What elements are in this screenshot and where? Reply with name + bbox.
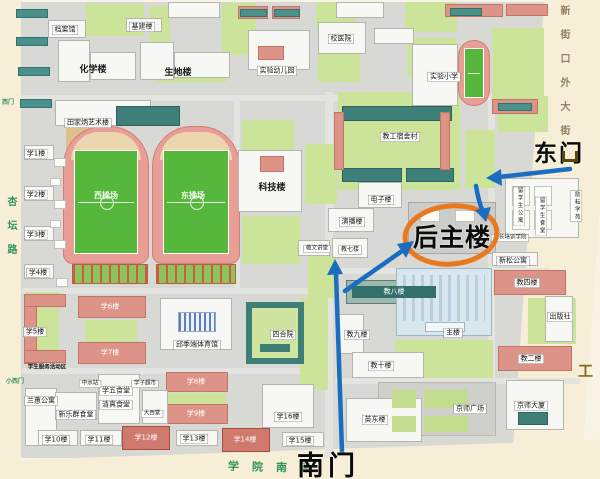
annex bbox=[50, 220, 61, 228]
map-label: 档案馆 bbox=[53, 25, 78, 34]
west-field-pitch bbox=[74, 150, 138, 254]
map-label: 学14楼 bbox=[232, 435, 259, 444]
label-chip bbox=[18, 67, 50, 76]
map-label: 教四楼 bbox=[515, 278, 540, 287]
map-label: 学3楼 bbox=[25, 230, 47, 239]
map-label: 化学楼 bbox=[77, 65, 108, 77]
map-label: 学6楼 bbox=[99, 302, 121, 311]
annex bbox=[54, 200, 66, 209]
annex bbox=[54, 158, 66, 167]
dorm-xue5 bbox=[24, 350, 66, 363]
primary-school-pitch bbox=[464, 48, 484, 98]
map-label: 校医院 bbox=[329, 34, 354, 43]
side-gate-icon: 工 bbox=[578, 360, 593, 381]
map-label: 学生服务活动区 bbox=[26, 364, 69, 371]
map-label: 新松公寓 bbox=[497, 256, 529, 265]
square-lawn bbox=[424, 416, 468, 432]
map-label: 演播楼 bbox=[340, 217, 365, 226]
map-label: 留学生食堂 bbox=[535, 197, 546, 235]
main-building bbox=[396, 268, 492, 336]
label-chip bbox=[20, 99, 52, 108]
faculty-housing-wing bbox=[440, 112, 450, 170]
lawn bbox=[168, 393, 226, 404]
faculty-housing-bar bbox=[342, 168, 402, 182]
map-label: 留学生公寓 bbox=[513, 187, 524, 225]
map-label: 西操场 bbox=[92, 191, 120, 201]
map-label: 励耘学苑 bbox=[570, 191, 581, 221]
map-label: 学5楼 bbox=[24, 327, 46, 336]
map-label: 教十楼 bbox=[369, 361, 394, 370]
destination-label: 后主楼 bbox=[413, 218, 491, 254]
map-label: 学4楼 bbox=[27, 268, 49, 277]
map-label: 教七楼 bbox=[339, 246, 361, 254]
annex bbox=[56, 278, 68, 287]
building bbox=[336, 2, 384, 18]
map-label: 实验小学 bbox=[428, 72, 460, 81]
map-label: 学2楼 bbox=[25, 190, 47, 199]
map-label: 生地楼 bbox=[162, 68, 193, 80]
east-gate-icon bbox=[562, 151, 578, 162]
map-label: 科技楼 bbox=[256, 183, 287, 195]
square-lawn bbox=[392, 390, 416, 408]
lawn bbox=[492, 28, 544, 102]
dorm-xue5 bbox=[24, 294, 66, 307]
map-label: 敬文讲堂 bbox=[304, 245, 330, 252]
annex bbox=[50, 178, 61, 186]
map-label: 学10楼 bbox=[43, 435, 70, 444]
small-west-gate-label: 小西门 bbox=[6, 376, 24, 385]
map-label: 主楼 bbox=[444, 328, 462, 337]
map-label: 学11楼 bbox=[86, 435, 113, 444]
science-tech-annex bbox=[260, 156, 284, 172]
map-label: 学13楼 bbox=[181, 434, 208, 443]
map-label: 学子超市 bbox=[132, 380, 158, 387]
map-label: 出版社 bbox=[548, 312, 573, 321]
label-chip bbox=[16, 37, 48, 46]
map-label: 京师大厦 bbox=[515, 401, 547, 410]
map-label: 邱季端体育馆 bbox=[174, 340, 220, 349]
lawn bbox=[308, 254, 336, 298]
label-chip bbox=[498, 103, 532, 111]
lawn bbox=[242, 216, 300, 264]
building bbox=[168, 2, 220, 18]
map-label: 清真食堂 bbox=[100, 400, 132, 409]
map-label: 学16楼 bbox=[275, 412, 302, 421]
lawn bbox=[305, 144, 337, 204]
south-gate-label: 南门 bbox=[297, 444, 359, 479]
kindergarten-red-roof bbox=[258, 46, 284, 60]
daxitang bbox=[142, 390, 168, 424]
label-chip bbox=[450, 8, 482, 16]
map-label: 教九楼 bbox=[345, 330, 370, 339]
west-gate-label: 西门 bbox=[2, 97, 14, 106]
bleachers bbox=[72, 264, 148, 284]
map-label: 教八楼 bbox=[382, 287, 407, 296]
map-label: 校长培训学院 bbox=[491, 234, 528, 241]
dorm-bar bbox=[506, 4, 548, 16]
gymnasium-roof bbox=[178, 312, 216, 332]
building bbox=[374, 28, 414, 44]
label-chip bbox=[16, 9, 48, 18]
map-label: 电子楼 bbox=[369, 195, 394, 204]
map-label: 英东楼 bbox=[363, 415, 388, 424]
square-lawn bbox=[392, 416, 416, 432]
map-label: 学1楼 bbox=[25, 149, 47, 158]
faculty-housing-bar bbox=[342, 106, 452, 121]
label-chip bbox=[240, 9, 267, 17]
street bbox=[22, 288, 332, 294]
road-label-xingtan: 杏坛路 bbox=[3, 196, 18, 268]
map-label: 学五食堂 bbox=[100, 386, 132, 395]
map-label: 学7楼 bbox=[99, 348, 121, 357]
lawn bbox=[85, 320, 137, 342]
annex bbox=[54, 240, 66, 249]
faculty-housing-wing bbox=[334, 112, 344, 170]
map-label: 教工宿舍村 bbox=[381, 132, 420, 141]
lawn bbox=[300, 298, 328, 390]
map-label: 实验幼儿园 bbox=[258, 66, 297, 75]
map-label: 田家炳艺术楼 bbox=[65, 118, 111, 127]
map-label: 四合院 bbox=[271, 330, 296, 339]
road-label-xinjiekou: 新街口外大街 bbox=[556, 5, 571, 149]
map-label: 学8楼 bbox=[185, 377, 207, 386]
map-label: 教二楼 bbox=[519, 354, 544, 363]
lawn bbox=[465, 130, 495, 188]
map-label: 兰蕙公寓 bbox=[25, 396, 57, 405]
map-label: 中水站 bbox=[80, 380, 101, 387]
map-label: 新乐群食堂 bbox=[57, 410, 96, 419]
map-label: 学9楼 bbox=[185, 409, 207, 418]
map-label: 京师广场 bbox=[454, 404, 486, 413]
label-chip bbox=[274, 9, 300, 17]
map-label: 学12楼 bbox=[133, 433, 160, 442]
jingshi-hotel-annex bbox=[518, 412, 548, 425]
campus-map: 杏坛路 新街口外大街 学院南路 西门 小西门 档案馆基建楼化学楼生地楼实验幼儿园… bbox=[0, 0, 600, 479]
map-label: 大西堂 bbox=[142, 410, 163, 417]
east-field-pitch bbox=[163, 150, 229, 254]
map-label: 基建楼 bbox=[130, 22, 155, 31]
map-label: 东操场 bbox=[179, 191, 207, 201]
faculty-housing-bar bbox=[406, 168, 454, 182]
bleachers bbox=[156, 264, 236, 284]
natatorium bbox=[116, 106, 180, 126]
